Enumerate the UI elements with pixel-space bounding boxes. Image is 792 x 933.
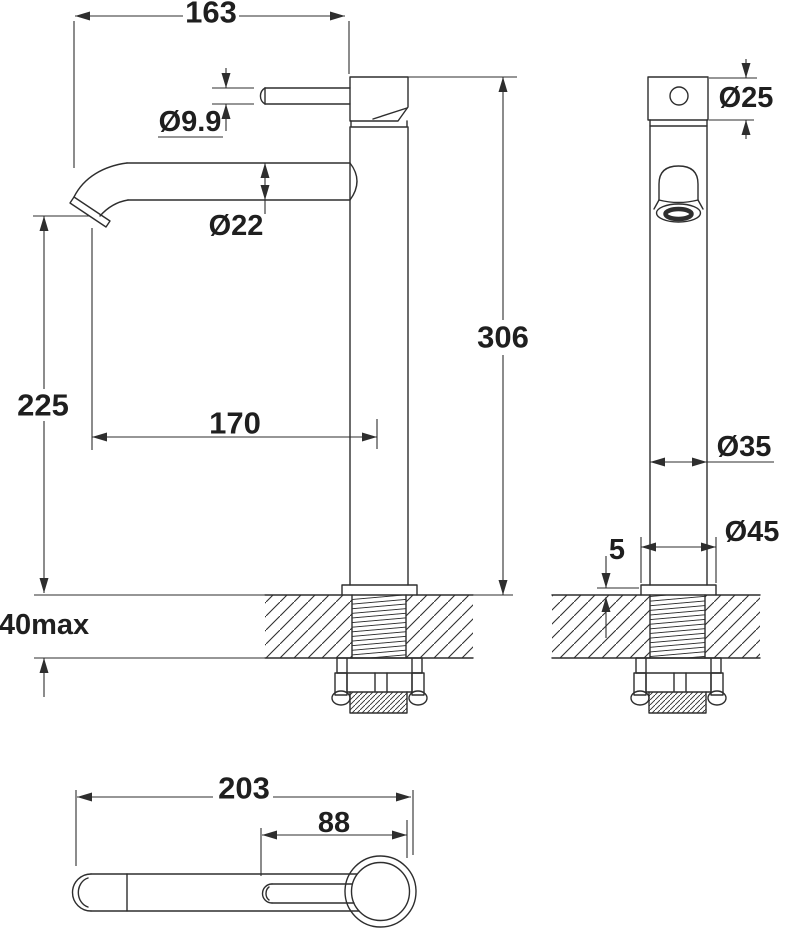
front-counter [34, 595, 513, 658]
dim-spout-outlet-height-label: 225 [17, 388, 69, 423]
side-outlet [654, 166, 703, 222]
dim-handle-diameter-label: Ø9.9 [159, 106, 222, 138]
dim-outlet-to-axis-label: 170 [209, 406, 261, 441]
dim-body-diameter-label: Ø35 [717, 431, 772, 463]
front-dimensions: 163 Ø9.9 Ø22 225 40max 170 306 [0, 0, 529, 697]
threaded-shank [650, 595, 705, 658]
dim-handle-diameter-label: Ø25 [719, 82, 774, 114]
plan-lever [263, 884, 355, 903]
dim-overall-length-label: 203 [218, 771, 270, 806]
side-body [648, 77, 708, 585]
dim-deck-thickness-label: 40max [0, 609, 89, 641]
front-lever [260, 88, 350, 104]
washer [337, 658, 422, 673]
plan-view: 203 88 [73, 771, 417, 928]
base-flange [342, 585, 417, 595]
handle-seam-line [373, 108, 407, 119]
technical-drawing: 163 Ø9.9 Ø22 225 40max 170 306 [0, 0, 792, 933]
washer [636, 658, 721, 673]
dim-handle-length-label: 88 [318, 807, 350, 839]
threaded-shank [352, 595, 406, 658]
mounting-nut [646, 673, 711, 692]
drawing-page: 163 Ø9.9 Ø22 225 40max 170 306 [0, 0, 792, 933]
dim-base-plate-height-label: 5 [609, 534, 625, 566]
mounting-nut [347, 673, 412, 692]
plan-body [345, 856, 416, 927]
front-view: 163 Ø9.9 Ø22 225 40max 170 306 [0, 0, 529, 713]
side-dimensions: Ø25 Ø35 Ø45 5 [597, 59, 779, 638]
aerator-ring [666, 209, 692, 219]
dim-overall-height-label: 306 [477, 320, 529, 355]
front-body [350, 77, 408, 585]
dim-base-diameter-label: Ø45 [725, 516, 780, 548]
handle-pin-hole [670, 87, 688, 105]
dim-spout-reach-label: 163 [185, 0, 237, 30]
base-flange [641, 585, 716, 595]
spout-joint-arc [350, 163, 357, 200]
plan-spout [73, 874, 360, 911]
dim-spout-tube-diameter-label: Ø22 [209, 210, 264, 242]
side-view: Ø25 Ø35 Ø45 5 [552, 59, 779, 713]
